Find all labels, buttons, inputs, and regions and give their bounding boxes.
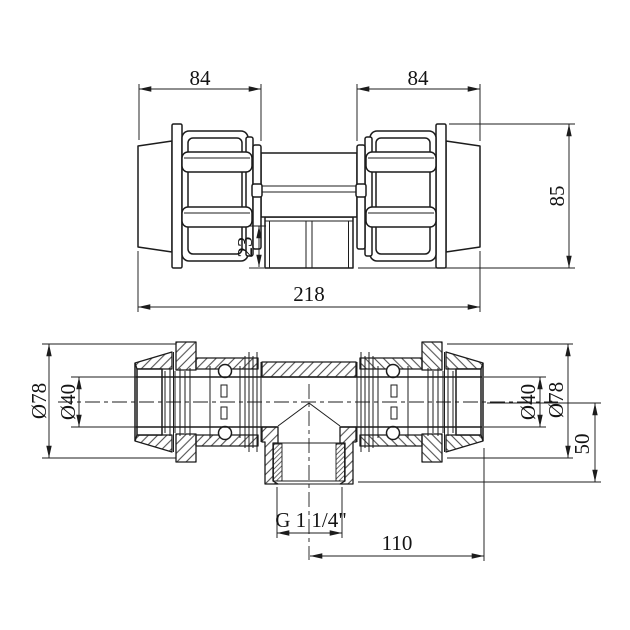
dim-label-d40-left: Ø40 [56, 384, 80, 420]
front-right-assembly [356, 124, 480, 268]
front-nut-flange [172, 124, 182, 268]
section-nut-flange-top [176, 342, 196, 370]
dim-label-85: 85 [545, 186, 569, 207]
dim-label-thread: G 1 1/4" [275, 508, 347, 532]
front-cap [138, 141, 172, 252]
dim-thread-size: G 1 1/4" [275, 487, 347, 538]
drawing-page: 84 84 85 23 218 [0, 0, 630, 630]
section-oring-top [219, 365, 232, 378]
section-cap-wall-bottom [135, 435, 172, 452]
dim-label-od78-right: Ø78 [544, 382, 568, 418]
dim-width-right: 84 [357, 66, 480, 141]
front-nut-rib-top [182, 152, 252, 172]
dim-label-50: 50 [570, 434, 594, 455]
dim-width-left: 84 [139, 66, 261, 141]
section-slot-bottom [221, 407, 227, 419]
section-slot-top [221, 385, 227, 397]
front-view [138, 124, 480, 268]
front-branch-outlet [265, 217, 353, 268]
technical-drawing-canvas: 84 84 85 23 218 [0, 0, 630, 630]
drill-cone-left [278, 403, 309, 426]
front-body-tab [252, 184, 262, 197]
dim-label-23: 23 [233, 237, 257, 258]
thread-zone-left [274, 444, 283, 481]
front-body [261, 153, 357, 217]
dim-label-84-left: 84 [190, 66, 212, 90]
dim-label-84-right: 84 [408, 66, 430, 90]
section-cap-wall-top [135, 352, 172, 369]
section-body-wall-top [262, 362, 356, 377]
dim-label-d40-right: Ø40 [516, 384, 540, 420]
thread-zone-right [336, 444, 345, 481]
dim-label-110: 110 [382, 531, 413, 555]
section-nut-flange-bottom [176, 434, 196, 462]
drill-cone-right [309, 403, 340, 426]
front-nut-rib-bottom [182, 207, 252, 227]
dim-label-218: 218 [293, 282, 325, 306]
section-oring-bottom [219, 427, 232, 440]
dim-label-od78-left: Ø78 [27, 383, 51, 419]
